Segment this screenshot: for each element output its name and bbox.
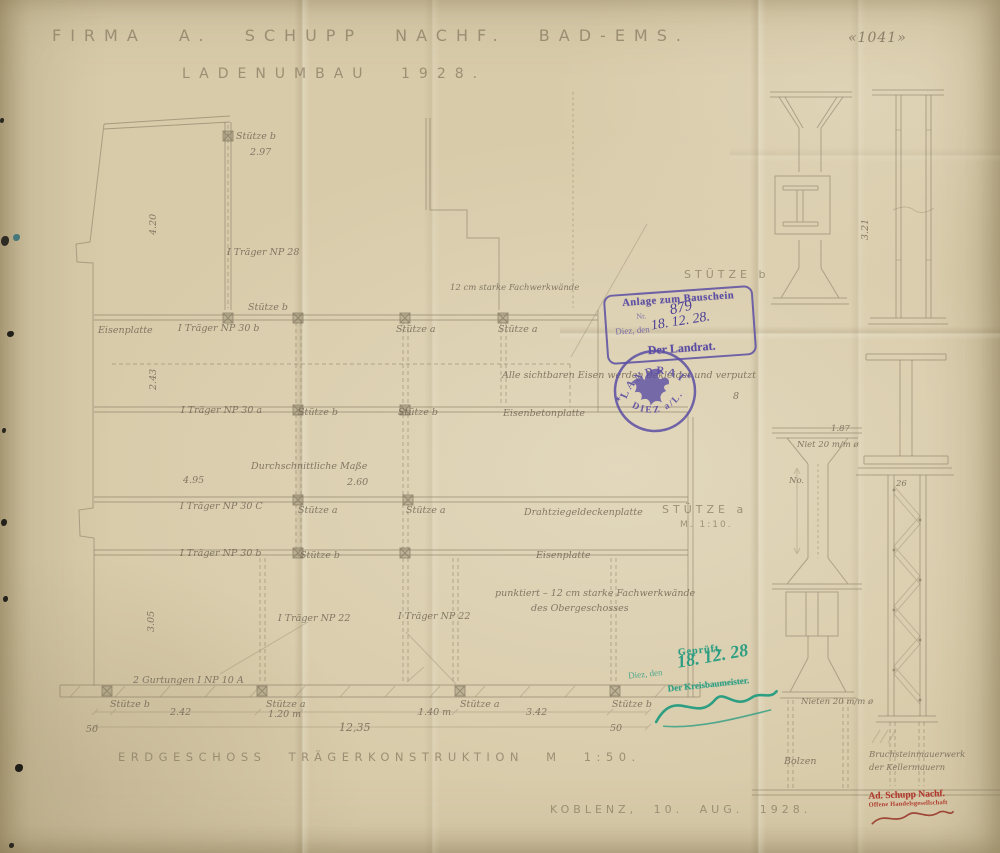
detail-tall-column	[868, 90, 948, 324]
label-stuetze-b: Stütze b	[398, 407, 438, 418]
dim-242: 2.42	[170, 707, 191, 718]
dim-187: 1.87	[831, 424, 850, 434]
plan-linework-svg	[0, 0, 1000, 853]
firma-signature	[869, 806, 958, 831]
detail-ibeam-profile	[856, 354, 954, 475]
beam-label-np22: I Träger NP 22	[278, 613, 350, 624]
dim-342: 3.42	[526, 707, 547, 718]
drawing-title: FIRMA A. SCHUPP NACHF. BAD-EMS.	[52, 26, 690, 45]
note-fachwerk: 12 cm starke Fachwerkwände	[450, 283, 579, 293]
firma-stamp: Ad. Schupp Nachf. Offene Handelsgesellsc…	[868, 788, 969, 835]
stamp-ort: Diez, den	[615, 324, 650, 336]
detail-scale: M. 1:10.	[680, 520, 733, 530]
dim-495: 4.95	[183, 475, 204, 486]
stamp-nr-label: Nr.	[636, 311, 647, 321]
note-bruchstein: Bruchsteinmauerwerk	[869, 750, 965, 760]
note-acht: 8	[733, 391, 739, 402]
dim-120: 1.20 m	[268, 709, 301, 720]
label-stuetze-a: Stütze a	[396, 324, 436, 335]
stamp-ort: Diez, den	[628, 667, 663, 681]
dim-243: 2.43	[148, 369, 159, 390]
label-durchschnitt: Durchschnittliche Maße	[251, 461, 367, 472]
label-stuetze-a: Stütze a	[298, 505, 338, 516]
beam-label-np22: I Träger NP 22	[398, 611, 470, 622]
label-eisenbetonplatte: Eisenbetonplatte	[503, 408, 585, 419]
place-date: KOBLENZ, 10. AUG. 1928.	[550, 803, 811, 816]
label-stuetze-a: Stütze a	[460, 699, 500, 710]
label-deckenplatte: Drahtziegeldeckenplatte	[524, 507, 643, 518]
dim-420: 4.20	[148, 214, 159, 235]
beam-label-np28: I Träger NP 28	[227, 247, 299, 258]
geprueft-stamp: Geprüft. Diez, den 18. 12. 28 Der Kreisb…	[618, 635, 806, 743]
dim-50: 50	[610, 723, 622, 734]
dim-140: 1.40 m	[418, 707, 451, 718]
label-eisenplatte: Eisenplatte	[536, 550, 591, 561]
beam-label-np30c: I Träger NP 30 C	[180, 501, 263, 512]
stamp-date: 18. 12. 28.	[650, 309, 711, 334]
note-bolzen: Bolzen	[784, 756, 817, 767]
drawing-sheet: FIRMA A. SCHUPP NACHF. BAD-EMS. LADENUMB…	[0, 0, 1000, 853]
detail-lattice-column	[872, 475, 938, 786]
drawing-subtitle: LADENUMBAU 1928.	[182, 66, 486, 82]
dim-50: 50	[86, 724, 98, 735]
label-stuetze-a: Stütze a	[498, 324, 538, 335]
note-punktiert: punktiert – 12 cm starke Fachwerkwände	[495, 588, 695, 599]
detail-stuetze-b-elevation	[770, 92, 852, 304]
dim-297: 2.97	[250, 147, 271, 158]
dim-no: No.	[789, 476, 804, 486]
note-bruchstein-2: der Kellermauern	[869, 763, 945, 773]
label-stuetze-b: Stütze b	[300, 550, 340, 561]
beam-label-np30b: I Träger NP 30 b	[178, 323, 260, 334]
dim-26: 26	[896, 479, 907, 489]
leader-lines	[220, 622, 456, 684]
label-stuetze-b: Stütze b	[298, 407, 338, 418]
dim-total: 12,35	[339, 721, 371, 734]
note-punktiert-2: des Obergeschosses	[531, 603, 629, 614]
dim-321: 3.21	[860, 219, 871, 240]
label-stuetze-b: Stütze b	[110, 699, 150, 710]
beam-label-np30a: I Träger NP 30 a	[181, 405, 262, 416]
dim-305: 3.05	[146, 611, 157, 632]
note-niet: Niet 20 m/m ø	[797, 440, 859, 450]
detail-title-stuetze-a: STÜTZE a	[662, 503, 747, 516]
label-eisenplatte: Eisenplatte	[98, 325, 153, 336]
note-nieten: Nieten 20 m/m ø	[801, 697, 873, 707]
beam-label-np30b: I Träger NP 30 b	[180, 548, 262, 559]
detail-title-stuetze-b: STÜTZE b	[684, 268, 769, 281]
label-durchschnitt-wert: 2.60	[347, 477, 368, 488]
drawing-caption: ERDGESCHOSS TRÄGERKONSTRUKTION M 1:50.	[118, 750, 641, 764]
beam-label-gurtungen: 2 Gurtungen I NP 10 A	[133, 675, 244, 686]
label-stuetze-b: Stütze b	[248, 302, 288, 313]
label-stuetze-b: Stütze b	[236, 131, 276, 142]
sheet-number: «1041»	[848, 30, 907, 46]
label-stuetze-a: Stütze a	[406, 505, 446, 516]
